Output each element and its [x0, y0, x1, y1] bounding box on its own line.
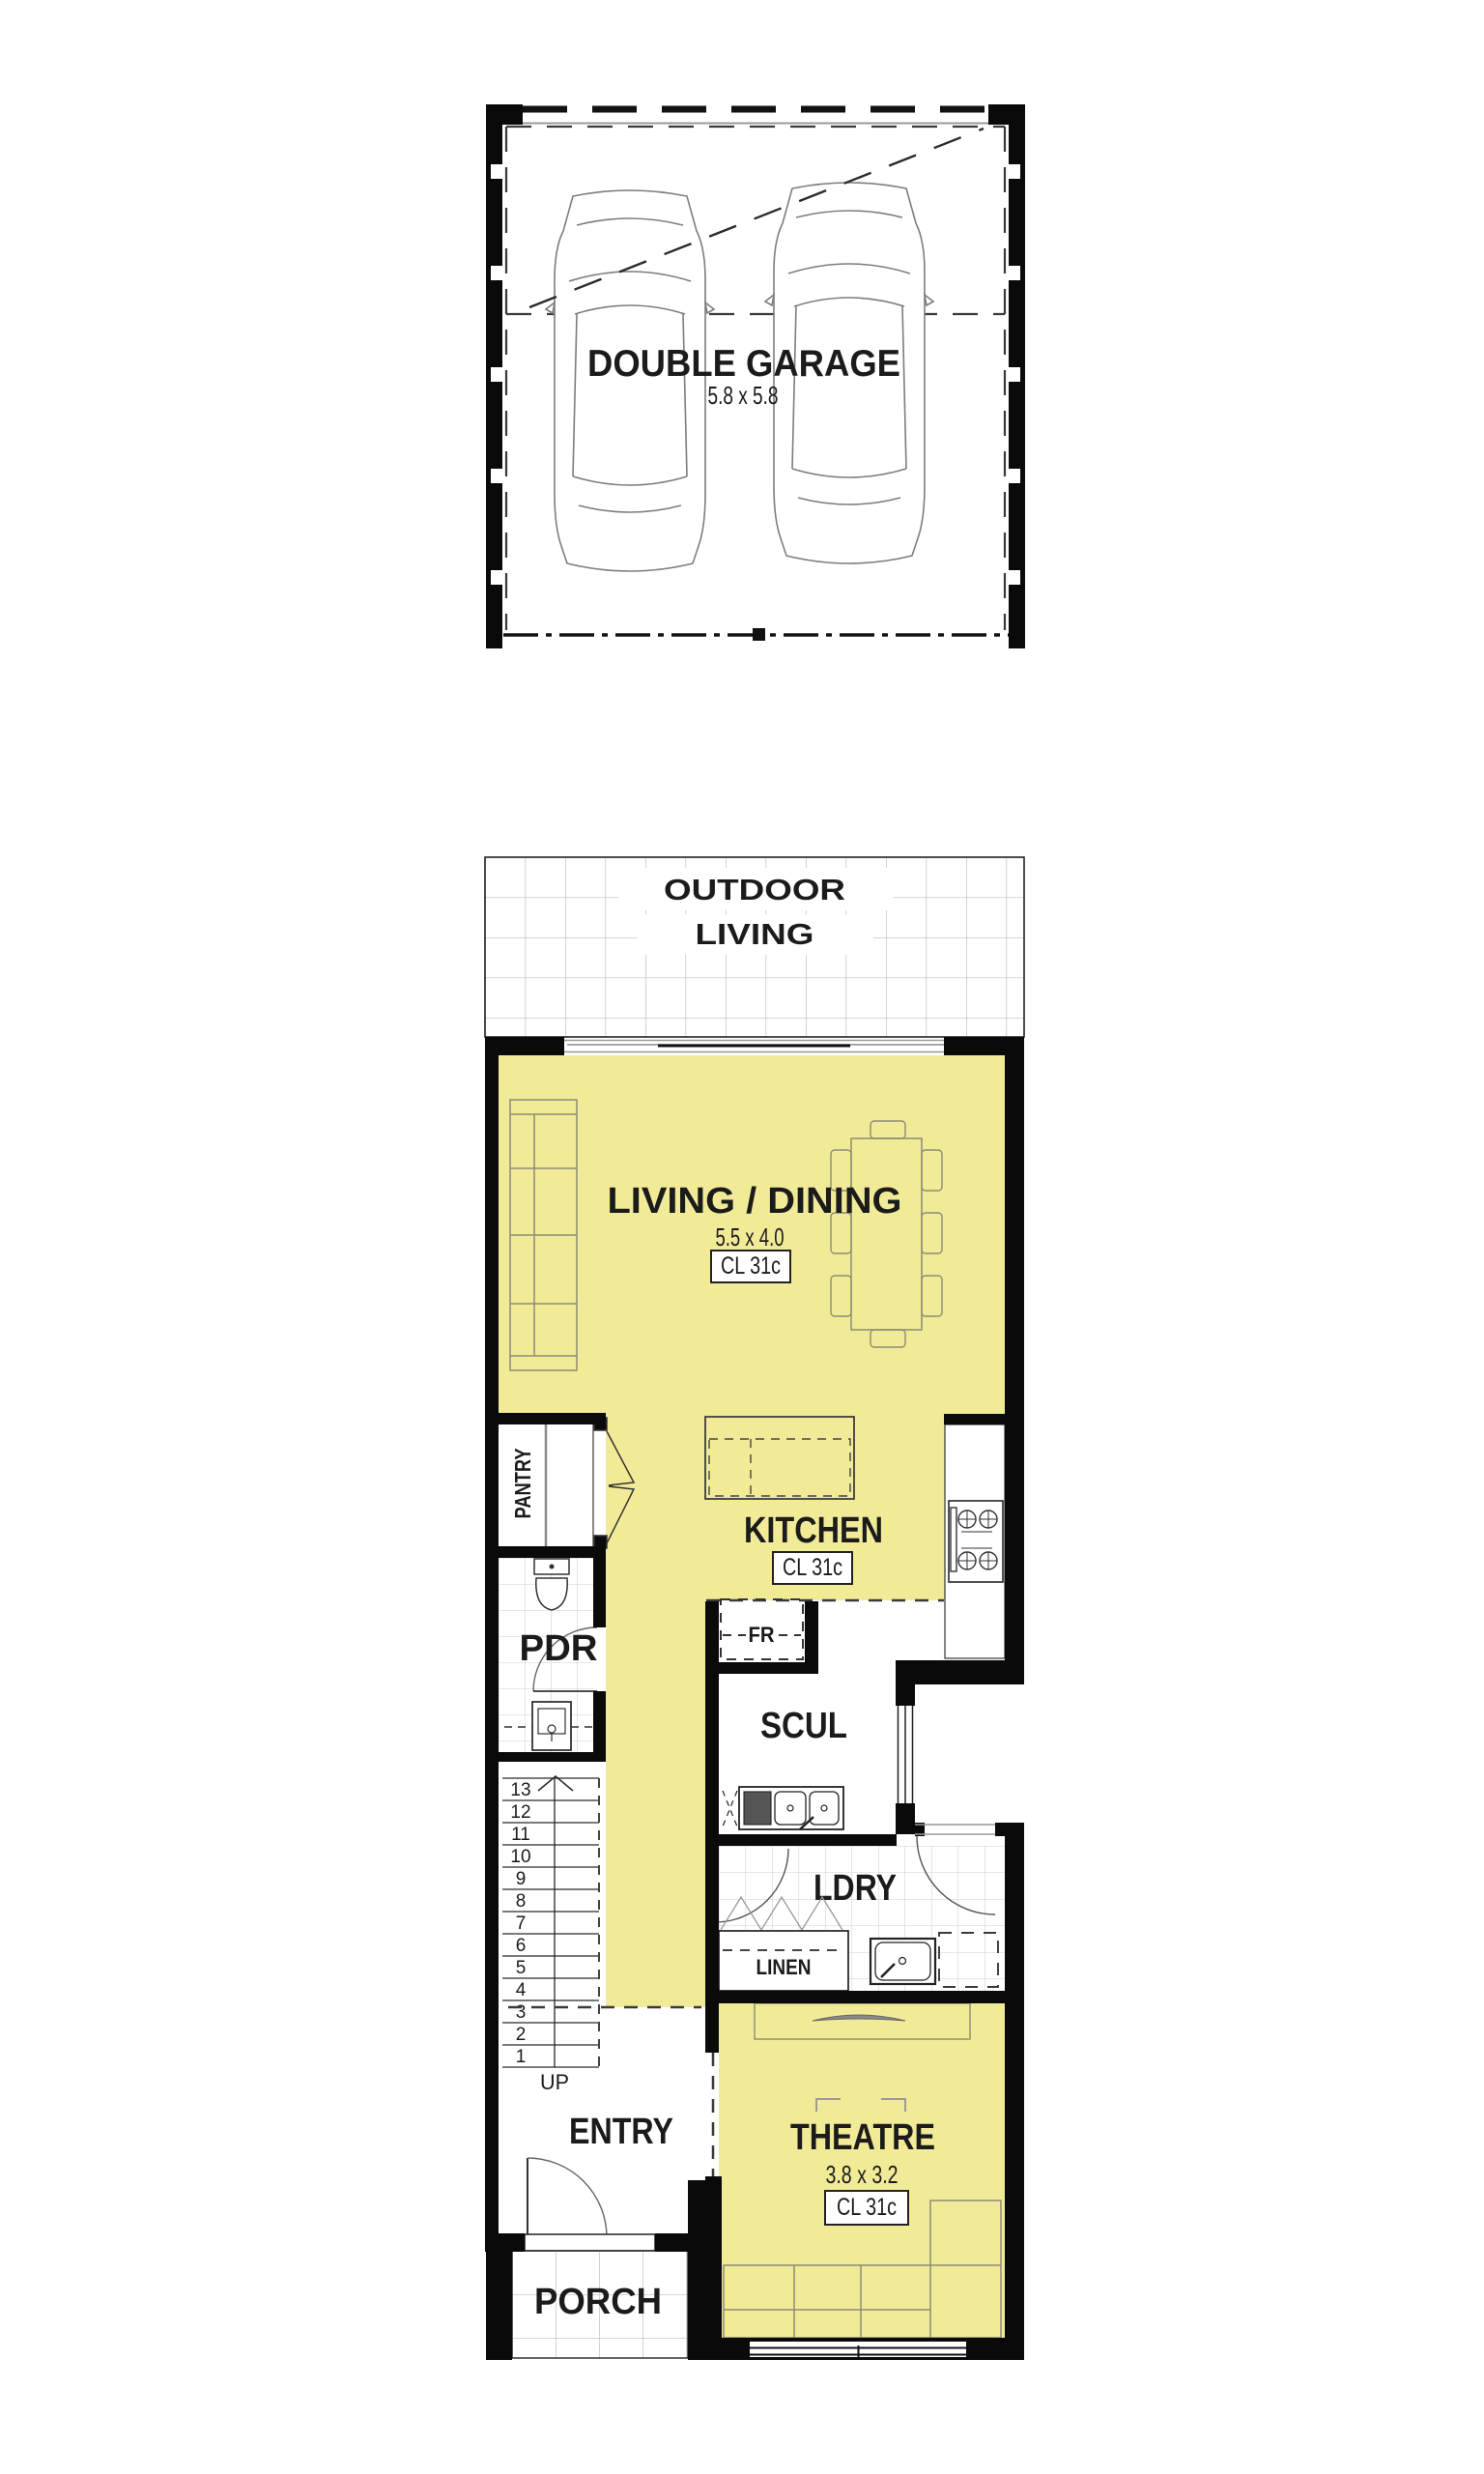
- svg-text:2: 2: [516, 2025, 527, 2045]
- svg-text:PDR: PDR: [520, 1628, 598, 1669]
- svg-text:UP: UP: [540, 2070, 569, 2094]
- svg-text:FR: FR: [749, 1623, 775, 1647]
- svg-text:3.8 x 3.2: 3.8 x 3.2: [826, 2160, 899, 2189]
- svg-text:6: 6: [516, 1936, 527, 1956]
- svg-text:9: 9: [516, 1869, 527, 1889]
- svg-text:13: 13: [510, 1780, 530, 1800]
- svg-text:4: 4: [516, 1980, 527, 2000]
- svg-text:OUTDOOR: OUTDOOR: [664, 873, 845, 906]
- svg-text:3: 3: [516, 2002, 527, 2023]
- svg-text:8: 8: [516, 1891, 527, 1912]
- svg-text:5: 5: [516, 1958, 527, 1978]
- svg-text:1: 1: [516, 2047, 527, 2067]
- svg-text:7: 7: [516, 1913, 527, 1934]
- svg-text:10: 10: [510, 1847, 530, 1867]
- svg-text:PORCH: PORCH: [534, 2282, 662, 2322]
- svg-text:5.5 x 4.0: 5.5 x 4.0: [716, 1223, 785, 1251]
- svg-text:LIVING / DINING: LIVING / DINING: [608, 1181, 902, 1222]
- svg-text:CL 31c: CL 31c: [837, 2194, 897, 2221]
- svg-text:SCUL: SCUL: [760, 1706, 847, 1746]
- svg-text:ENTRY: ENTRY: [569, 2112, 673, 2152]
- svg-text:KITCHEN: KITCHEN: [744, 1510, 883, 1551]
- svg-text:THEATRE: THEATRE: [790, 2117, 935, 2158]
- svg-text:12: 12: [510, 1802, 530, 1823]
- svg-text:LIVING: LIVING: [696, 917, 814, 951]
- svg-text:CL 31c: CL 31c: [721, 1252, 781, 1280]
- svg-text:5.8 x 5.8: 5.8 x 5.8: [708, 381, 779, 410]
- svg-text:CL 31c: CL 31c: [783, 1554, 842, 1581]
- svg-text:PANTRY: PANTRY: [510, 1449, 535, 1519]
- svg-text:LINEN: LINEN: [756, 1955, 812, 1979]
- svg-text:11: 11: [511, 1825, 530, 1845]
- svg-text:DOUBLE GARAGE: DOUBLE GARAGE: [587, 343, 900, 385]
